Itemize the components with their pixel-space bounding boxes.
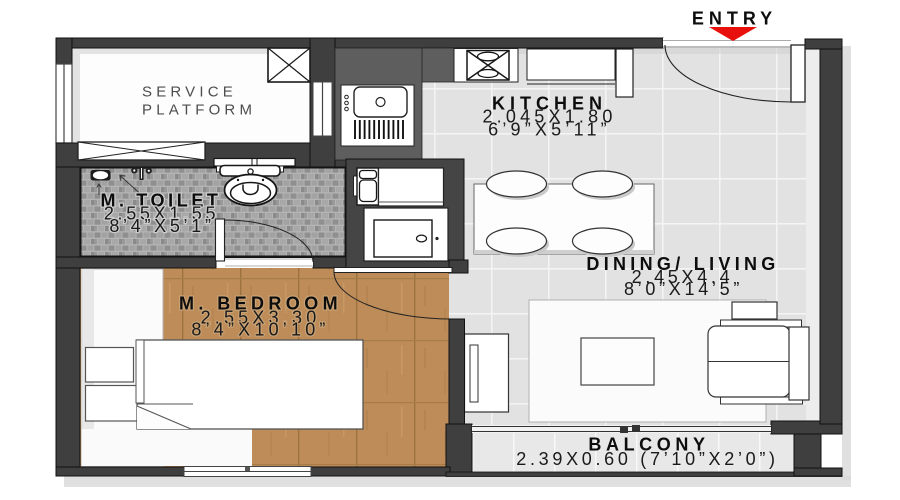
svg-text:2.39X0.60 (7’10”X2’0”): 2.39X0.60 (7’10”X2’0”) bbox=[516, 449, 779, 469]
svg-text:PLATFORM: PLATFORM bbox=[142, 102, 256, 119]
svg-text:SERVICE: SERVICE bbox=[142, 84, 237, 101]
svg-text:8’4”X5’1”: 8’4”X5’1” bbox=[109, 216, 214, 236]
svg-text:8’0”X14’5”: 8’0”X14’5” bbox=[624, 279, 743, 299]
svg-text:6’9”X5’11”: 6’9”X5’11” bbox=[488, 120, 611, 140]
svg-text:ENTRY: ENTRY bbox=[692, 9, 777, 29]
svg-text:8’4”X10’10”: 8’4”X10’10” bbox=[191, 320, 329, 340]
